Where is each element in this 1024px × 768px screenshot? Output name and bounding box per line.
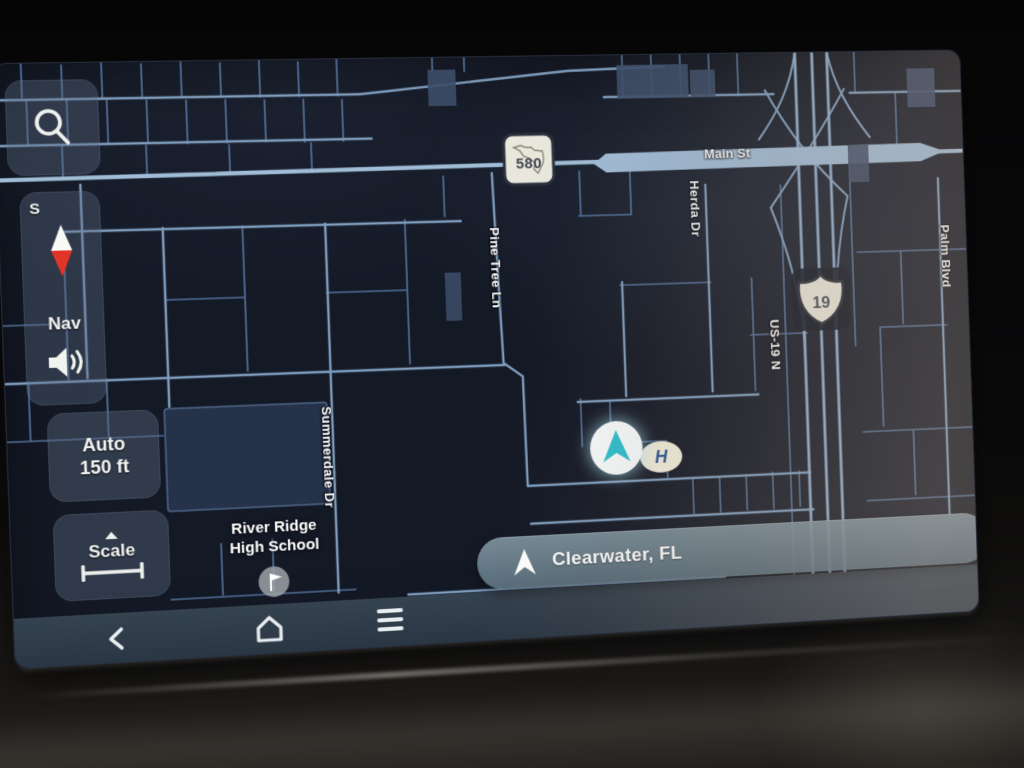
street-label-herda-dr: Herda Dr	[687, 180, 703, 237]
street-label-pine-tree-ln: Pine Tree Ln	[487, 227, 505, 308]
menu-button[interactable]	[377, 608, 404, 632]
infotainment-display: 580 19 H	[0, 49, 978, 667]
scale-button[interactable]: Scale	[52, 509, 171, 602]
home-button[interactable]	[253, 613, 287, 645]
hyundai-logo: H	[655, 446, 669, 467]
navigation-screen: 580 19 H	[0, 49, 980, 669]
auto-zoom-label-line2: 150 ft	[79, 455, 129, 480]
route-shield-19-number: 19	[812, 292, 830, 312]
school-grounds	[164, 402, 330, 511]
main-st-wide-segment	[593, 142, 945, 172]
compass-nav-panel[interactable]: S Nav	[19, 191, 107, 407]
vehicle-brand-badge: H	[639, 440, 682, 474]
compass-south-label: S	[29, 200, 40, 218]
route-shield-580: 580	[503, 134, 554, 185]
scale-bar-icon	[78, 561, 148, 581]
dashboard-photo: 580 19 H	[0, 0, 1024, 768]
speaker-icon	[44, 344, 88, 381]
current-location-puck	[589, 420, 643, 476]
street-label-main-st: Main St	[704, 146, 751, 162]
map-buildings	[427, 60, 942, 321]
navigation-arrow-icon	[512, 547, 537, 576]
back-button[interactable]	[105, 626, 127, 652]
compass-needle-icon	[47, 222, 77, 279]
route-shield-19: 19	[791, 267, 851, 331]
search-button[interactable]	[4, 79, 101, 176]
auto-zoom-button[interactable]: Auto 150 ft	[47, 409, 162, 503]
scale-expand-icon	[105, 531, 118, 539]
route-shield-580-number: 580	[516, 155, 543, 172]
dashboard-corner-light	[754, 598, 1024, 768]
menu-icon	[377, 608, 403, 614]
nav-mode-label: Nav	[24, 312, 105, 335]
auto-zoom-label-line1: Auto	[82, 432, 126, 457]
search-icon	[29, 104, 77, 150]
street-label-palm-blvd: Palm Blvd	[938, 224, 954, 288]
street-label-us-19-n: US-19 N	[767, 319, 783, 370]
current-location-text: Clearwater, FL	[552, 543, 683, 572]
scale-label: Scale	[88, 539, 135, 562]
